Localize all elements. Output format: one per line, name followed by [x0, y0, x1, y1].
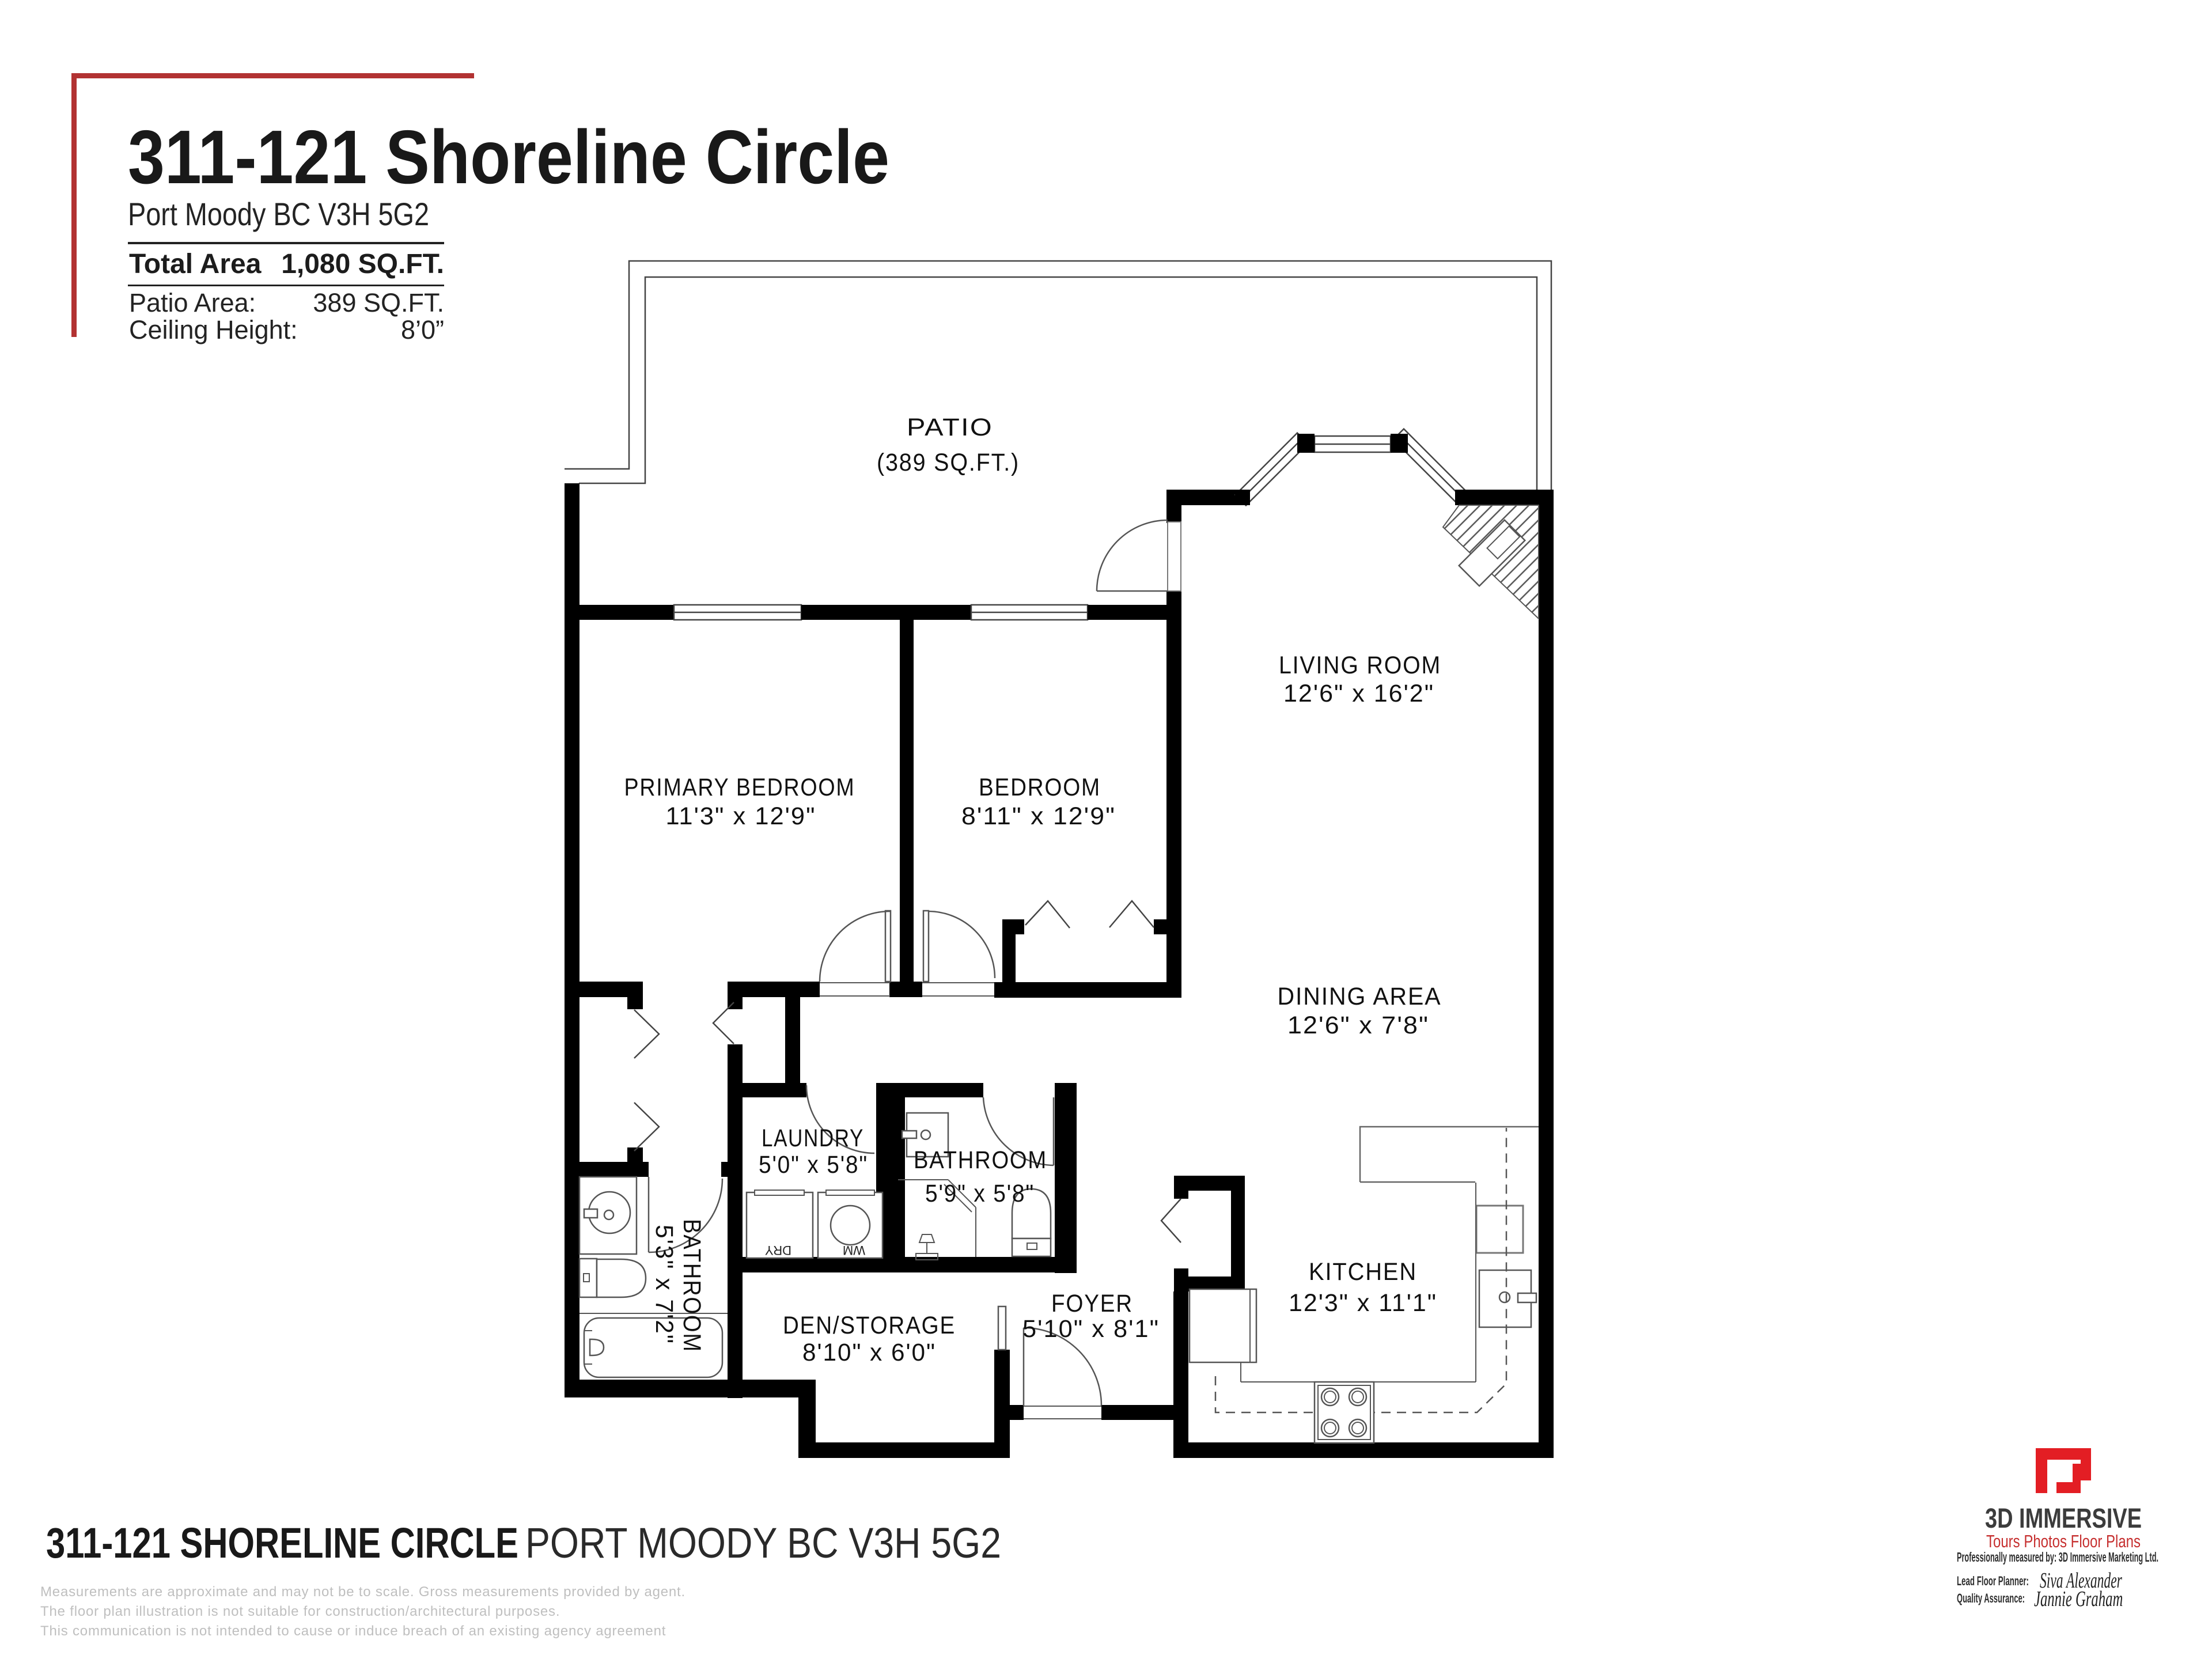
svg-text:5'10" x 8'1": 5'10" x 8'1"	[1022, 1315, 1160, 1343]
svg-text:BATHROOM: BATHROOM	[914, 1146, 1047, 1174]
svg-text:3D IMMERSIVE: 3D IMMERSIVE	[1985, 1503, 2142, 1534]
svg-text:This communication is not inte: This communication is not intended to ca…	[40, 1623, 666, 1639]
svg-text:12'6" x 16'2": 12'6" x 16'2"	[1283, 680, 1434, 707]
svg-text:PRIMARY BEDROOM: PRIMARY BEDROOM	[624, 774, 855, 801]
svg-text:LAUNDRY: LAUNDRY	[762, 1124, 864, 1152]
svg-text:8'10" x 6'0": 8'10" x 6'0"	[802, 1339, 936, 1366]
svg-text:5'9" x 5'8": 5'9" x 5'8"	[925, 1180, 1035, 1207]
svg-text:PATIO: PATIO	[907, 414, 993, 441]
svg-text:Measurements are approximate a: Measurements are approximate and may not…	[40, 1584, 685, 1600]
svg-text:311-121 Shoreline Circle: 311-121 Shoreline Circle	[128, 115, 889, 199]
svg-text:1,080 SQ.FT.: 1,080 SQ.FT.	[281, 249, 444, 279]
svg-text:(389 SQ.FT.): (389 SQ.FT.)	[877, 449, 1020, 476]
svg-text:5'3" x 7'2": 5'3" x 7'2"	[650, 1225, 678, 1344]
svg-text:DEN/STORAGE: DEN/STORAGE	[783, 1312, 956, 1339]
svg-text:8’0”: 8’0”	[401, 315, 444, 344]
svg-text:Total Area: Total Area	[129, 249, 262, 279]
svg-text:11'3" x 12'9": 11'3" x 12'9"	[666, 802, 816, 830]
svg-text:Patio Area:: Patio Area:	[129, 288, 256, 317]
svg-text:311-121 SHORELINE CIRCLE: 311-121 SHORELINE CIRCLE	[46, 1519, 518, 1567]
svg-text:12'6" x 7'8": 12'6" x 7'8"	[1287, 1012, 1429, 1039]
svg-text:Ceiling Height:: Ceiling Height:	[129, 315, 298, 344]
svg-text:Port Moody BC V3H 5G2: Port Moody BC V3H 5G2	[128, 196, 429, 232]
svg-text:DRY: DRY	[765, 1243, 791, 1257]
svg-text:Professionally measured by: 3D: Professionally measured by: 3D Immersive…	[1957, 1550, 2158, 1565]
svg-text:FOYER: FOYER	[1051, 1290, 1133, 1317]
svg-text:12'3" x 11'1": 12'3" x 11'1"	[1289, 1289, 1437, 1317]
svg-text:BEDROOM: BEDROOM	[979, 774, 1101, 801]
svg-text:Tours Photos Floor Plans: Tours Photos Floor Plans	[1986, 1531, 2141, 1551]
svg-text:PORT MOODY BC V3H 5G2: PORT MOODY BC V3H 5G2	[525, 1519, 1001, 1567]
svg-text:LIVING ROOM: LIVING ROOM	[1279, 652, 1441, 679]
svg-text:The floor plan illustration is: The floor plan illustration is not suita…	[40, 1604, 560, 1619]
svg-text:DINING AREA: DINING AREA	[1278, 983, 1442, 1010]
svg-text:8'11" x 12'9": 8'11" x 12'9"	[961, 802, 1116, 830]
svg-text:5'0" x 5'8": 5'0" x 5'8"	[759, 1151, 868, 1179]
svg-text:Lead Floor Planner:: Lead Floor Planner:	[1957, 1574, 2029, 1588]
svg-text:Jannie Graham: Jannie Graham	[2034, 1586, 2123, 1611]
svg-text:BATHROOM: BATHROOM	[678, 1219, 706, 1353]
svg-text:389 SQ.FT.: 389 SQ.FT.	[313, 288, 444, 317]
svg-text:Quality Assurance:: Quality Assurance:	[1957, 1591, 2025, 1605]
svg-text:WM: WM	[843, 1243, 865, 1257]
svg-text:KITCHEN: KITCHEN	[1309, 1258, 1417, 1286]
